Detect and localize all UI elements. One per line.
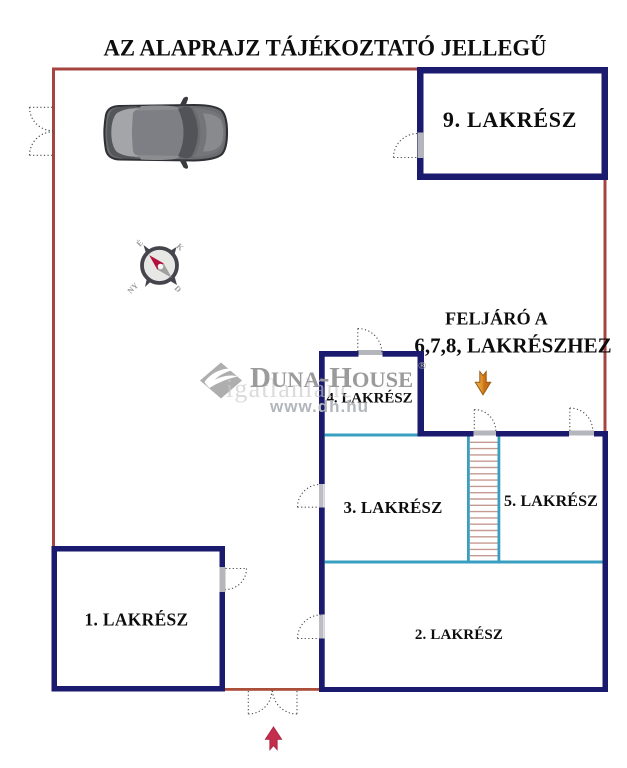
- svg-text:DUNA-HOUSE: DUNA-HOUSE: [250, 362, 413, 394]
- svg-text:6,7,8, LAKRÉSZHEZ: 6,7,8, LAKRÉSZHEZ: [414, 334, 611, 358]
- svg-text:NY: NY: [126, 281, 141, 296]
- svg-text:www.dh.hu: www.dh.hu: [269, 397, 369, 416]
- svg-text:9. LAKRÉSZ: 9. LAKRÉSZ: [443, 107, 577, 132]
- svg-text:2. LAKRÉSZ: 2. LAKRÉSZ: [415, 626, 503, 643]
- svg-text:AZ ALAPRAJZ TÁJÉKOZTATÓ JELLEG: AZ ALAPRAJZ TÁJÉKOZTATÓ JELLEGŰ: [103, 35, 546, 61]
- svg-text:1. LAKRÉSZ: 1. LAKRÉSZ: [84, 610, 188, 630]
- svg-text:FELJÁRÓ A: FELJÁRÓ A: [445, 308, 548, 329]
- svg-text:®: ®: [418, 360, 426, 372]
- svg-text:D: D: [173, 284, 184, 295]
- svg-text:K: K: [175, 242, 186, 253]
- svg-text:É: É: [134, 238, 145, 249]
- svg-text:5. LAKRÉSZ: 5. LAKRÉSZ: [504, 491, 598, 510]
- svg-text:3. LAKRÉSZ: 3. LAKRÉSZ: [344, 498, 443, 517]
